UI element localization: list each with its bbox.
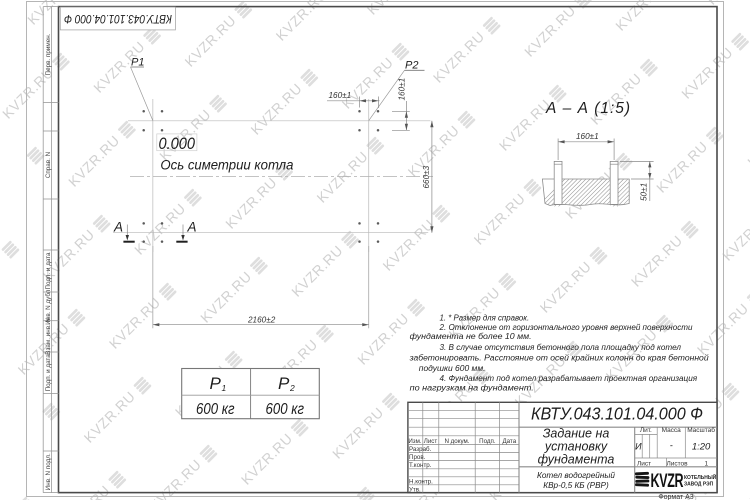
svg-text:P: P [278,374,290,393]
svg-text:P2: P2 [405,60,418,72]
svg-text:2160±2: 2160±2 [247,316,276,325]
svg-text:Масса: Масса [662,427,682,434]
svg-text:KVZR.RU: KVZR.RU [131,200,189,258]
svg-text:установку: установку [544,440,608,454]
svg-text:KVZR.RU: KVZR.RU [471,190,529,248]
svg-text:KVZR.RU: KVZR.RU [678,44,736,102]
svg-text:И: И [635,442,642,452]
svg-text:по нагрузкам на фундамент.: по нагрузкам на фундамент. [410,383,534,393]
svg-text:КОТЕЛЬНЫЙ: КОТЕЛЬНЫЙ [684,473,716,481]
svg-text:KVZR.RU: KVZR.RU [65,132,123,190]
svg-text:Формат А3: Формат А3 [658,494,693,500]
svg-text:4. Фундамент под котел разраба: 4. Фундамент под котел разрабатывает про… [440,373,698,383]
svg-text:160±1: 160±1 [398,78,407,101]
svg-text:Инв. N подл.: Инв. N подл. [45,453,52,490]
svg-text:ЗАВОД РЭП: ЗАВОД РЭП [684,481,713,487]
svg-text:1: 1 [222,383,227,393]
svg-text:KVZR.RU: KVZR.RU [587,70,645,128]
svg-text:P: P [210,374,222,393]
svg-text:160±1: 160±1 [329,91,352,100]
svg-text:KVZR.RU: KVZR.RU [430,28,488,86]
svg-text:KVZR.RU: KVZR.RU [106,294,164,352]
svg-text:КВТУ.043.101.04.000 Ф: КВТУ.043.101.04.000 Ф [531,404,703,424]
svg-text:1. * Размер для справок.: 1. * Размер для справок. [440,312,530,322]
svg-text:1: 1 [705,460,709,467]
svg-text:KVZR.RU: KVZR.RU [653,138,711,196]
svg-text:А: А [187,220,197,235]
svg-text:Лит.: Лит. [640,427,652,434]
svg-text:KVZR.RU: KVZR.RU [612,0,670,34]
svg-text:160±1: 160±1 [576,132,599,141]
svg-text:Ось симетрии котла: Ось симетрии котла [160,158,293,173]
svg-text:Изм.: Изм. [408,438,422,445]
svg-text:KVZR.RU: KVZR.RU [197,268,255,326]
svg-text:Котел водогрейный: Котел водогрейный [537,471,615,480]
svg-text:Подп. и дата: Подп. и дата [45,252,52,290]
svg-text:50±1: 50±1 [640,183,649,201]
svg-text:KVZR.RU: KVZR.RU [313,148,371,206]
svg-text:Масштаб: Масштаб [687,426,715,434]
svg-text:KVZR.RU: KVZR.RU [238,430,296,488]
svg-text:KVZR: KVZR [651,470,684,491]
svg-text:600 кг: 600 кг [266,401,305,418]
svg-text:KVZR.RU: KVZR.RU [735,462,750,500]
svg-text:KVZR.RU: KVZR.RU [379,216,437,274]
svg-text:Взам. инв. N: Взам. инв. N [45,317,52,354]
svg-text:660±3: 660±3 [422,165,431,188]
svg-text:Разраб.: Разраб. [409,446,432,453]
svg-text:KVZR.RU: KVZR.RU [55,482,113,500]
svg-text:0.000: 0.000 [159,134,196,153]
svg-text:Утв.: Утв. [409,486,421,493]
svg-text:Т.контр.: Т.контр. [409,462,432,469]
svg-text:N докум.: N докум. [444,438,469,445]
svg-text:KVZR.RU: KVZR.RU [628,232,686,290]
svg-text:KVZR.RU: KVZR.RU [222,174,280,232]
svg-text:А – А (1:5): А – А (1:5) [545,100,631,117]
svg-text:Лист: Лист [424,438,438,445]
svg-text:КВр-0,5 КБ (РВР): КВр-0,5 КБ (РВР) [543,481,609,490]
svg-text:KVZR.RU: KVZR.RU [694,300,750,358]
svg-text:KVZR.RU: KVZR.RU [81,388,139,446]
svg-text:Дата: Дата [502,438,516,445]
svg-text:KVZR.RU: KVZR.RU [537,258,595,316]
svg-text:Справ. N: Справ. N [45,151,52,178]
svg-text:Задание на: Задание на [543,427,610,441]
svg-text:KVZR.RU: KVZR.RU [247,80,305,138]
svg-text:фундамента не более 10 мм.: фундамента не более 10 мм. [410,331,532,341]
svg-text:Перв. примен.: Перв. примен. [45,33,52,75]
svg-text:Подп. и дата: Подп. и дата [45,354,52,392]
svg-text:А: А [113,220,123,235]
svg-text:KVZR.RU: KVZR.RU [521,2,579,60]
svg-text:KVZR.RU: KVZR.RU [288,242,346,300]
svg-text:Лист: Лист [637,460,651,467]
svg-text:KVZR.RU: KVZR.RU [405,122,463,180]
svg-text:KVZR.RU: KVZR.RU [339,54,397,112]
svg-text:KVZR.RU: KVZR.RU [364,0,422,18]
svg-text:600 кг: 600 кг [196,401,235,418]
svg-text:-: - [670,441,673,451]
svg-text:Н.контр.: Н.контр. [409,478,433,485]
svg-text:1:20: 1:20 [692,442,711,453]
svg-text:KVZR.RU: KVZR.RU [181,12,239,70]
svg-text:KVZR.RU: KVZR.RU [496,96,554,154]
svg-text:KVZR.RU: KVZR.RU [329,404,387,462]
svg-text:Пров.: Пров. [409,454,426,461]
svg-text:Листов: Листов [666,460,688,467]
svg-text:фундамента: фундамента [538,453,615,467]
svg-text:3. В случае отсутствия бетонно: 3. В случае отсутствия бетонного пола пл… [440,342,682,352]
svg-text:забетонировать. Расстояние от: забетонировать. Расстояние от осей крайн… [409,352,709,362]
svg-text:подушки 600 мм.: подушки 600 мм. [419,363,486,373]
svg-text:Подп.: Подп. [479,438,496,445]
svg-text:2: 2 [289,383,295,393]
svg-text:KVZR.RU: KVZR.RU [354,310,412,368]
svg-text:KVZR.RU: KVZR.RU [744,112,750,170]
svg-text:КВТУ.043.101.04.000 Ф: КВТУ.043.101.04.000 Ф [64,12,172,24]
